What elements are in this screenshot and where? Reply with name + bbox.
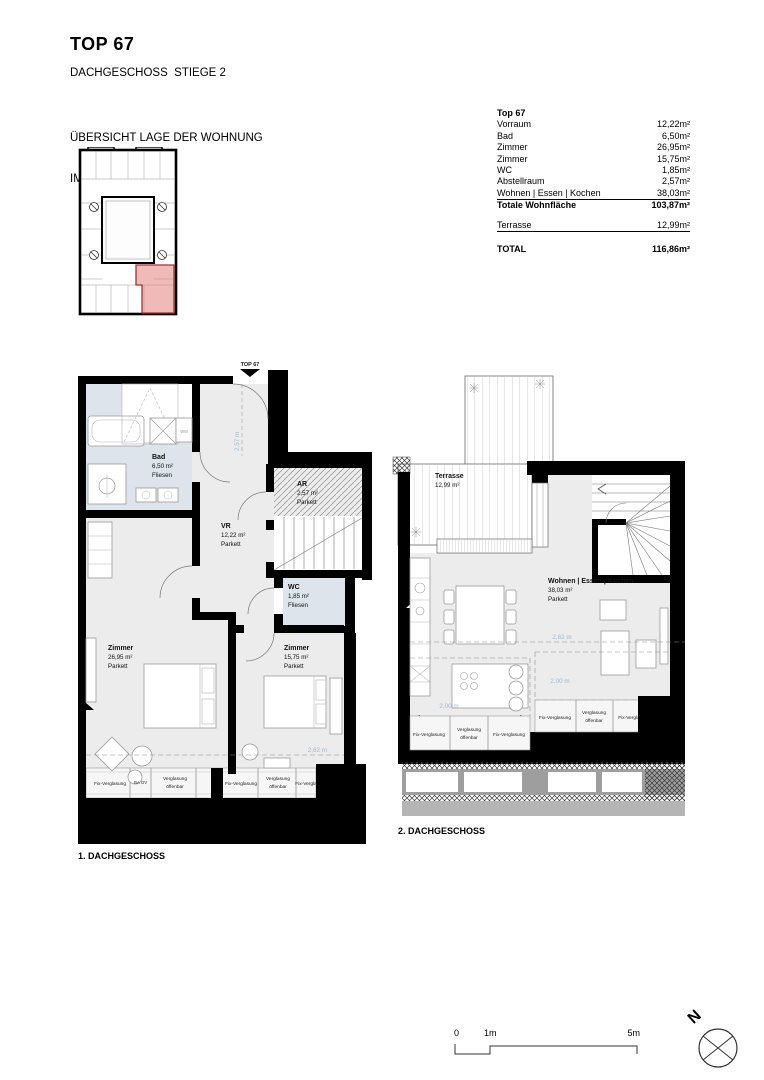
dim2-200-left: 2,00 m (439, 703, 458, 710)
svg-text:öffenbar: öffenbar (269, 784, 287, 790)
dim-257: 2,57 m (234, 432, 241, 451)
building-overview-plan (78, 147, 178, 318)
svg-text:Fix-Verglasung: Fix-Verglasung (413, 732, 445, 738)
dim2-262: 2,62 m (552, 634, 571, 641)
courtyard (102, 197, 154, 263)
ar-hatch (274, 468, 362, 516)
svg-text:Zimmer: Zimmer (284, 645, 310, 652)
svg-text:15,75 m²: 15,75 m² (284, 654, 308, 661)
dim2-200-right: 2,00 m (550, 678, 569, 685)
scale-tick-1m: 1m (484, 1028, 497, 1038)
table-total-row: TOTAL116,86m² (497, 244, 690, 255)
svg-text:Verglasung: Verglasung (457, 727, 481, 733)
window-band-left: Fix-Verglasung Verglasung öffenbar Fix-V… (410, 716, 530, 750)
table-row: Abstellraum2,57m² (497, 176, 690, 187)
svg-text:26,95 m²: 26,95 m² (108, 654, 132, 661)
entrance-label: TOP 67 (241, 362, 260, 368)
svg-text:Verglasung: Verglasung (582, 710, 606, 716)
page-title: TOP 67 (70, 34, 134, 55)
scale-bar: 0 1m 5m (450, 1022, 650, 1066)
svg-text:Verglasung: Verglasung (266, 776, 290, 782)
svg-text:AR: AR (297, 481, 307, 488)
north-compass: N (678, 998, 750, 1078)
table-row: WC1,85m² (497, 165, 690, 176)
highlighted-unit (136, 265, 174, 313)
table-terrace-row: Terrasse12,99m² (497, 220, 690, 232)
svg-text:Parkett: Parkett (108, 663, 128, 670)
table-row: Zimmer26,95m² (497, 142, 690, 153)
area-summary-table: Top 67 Vorraum12,22m² Bad6,50m² Zimmer26… (497, 108, 690, 255)
svg-text:6,50 m²: 6,50 m² (152, 463, 173, 470)
scale-tick-5m: 5m (627, 1028, 640, 1038)
band-end-wall (316, 764, 366, 802)
table-title: Top 67 (497, 108, 525, 119)
svg-text:Fliesen: Fliesen (152, 472, 173, 479)
plan1-caption: 1. DACHGESCHOSS (78, 851, 165, 861)
scale-bar-line (455, 1044, 637, 1054)
room-vr (192, 384, 274, 620)
dim-262: 2,62 m (308, 747, 327, 754)
table-row: Vorraum12,22m² (497, 119, 690, 130)
wm-label: WM (180, 429, 188, 434)
svg-text:Fix-Verglasung: Fix-Verglasung (94, 781, 126, 787)
window-band-right: Fix-Verglasung Verglasung öffenbar Fix-V… (535, 700, 645, 732)
svg-text:VR: VR (221, 523, 231, 530)
svg-text:Fix-Verglasung: Fix-Verglasung (539, 715, 571, 721)
svg-text:Parkett: Parkett (221, 541, 241, 548)
svg-text:12,22 m²: 12,22 m² (221, 532, 245, 539)
svg-text:Zimmer: Zimmer (108, 645, 134, 652)
plan2-caption: 2. DACHGESCHOSS (398, 826, 485, 836)
svg-text:Fix-Vergla: Fix-Vergla (295, 781, 317, 787)
north-label: N (685, 1007, 705, 1027)
entrance-arrow-icon (240, 369, 260, 377)
svg-text:12,99 m²: 12,99 m² (435, 482, 459, 489)
table-row: Zimmer15,75m² (497, 154, 690, 165)
terrace (398, 376, 553, 545)
svg-text:Bad: Bad (152, 454, 165, 461)
page-subtitle: DACHGESCHOSS STIEGE 2 (70, 67, 226, 79)
band-end-wall2 (638, 696, 685, 736)
svg-text:Terrasse: Terrasse (435, 473, 464, 480)
svg-text:Parkett: Parkett (297, 499, 317, 506)
bottom-roof-mass (78, 798, 366, 844)
svg-text:Fliesen: Fliesen (288, 602, 309, 609)
band-pier (211, 768, 223, 798)
svg-text:Fix-Verglasung: Fix-Verglasung (225, 781, 257, 787)
plan-1-dachgeschoss: TOP 67 (78, 356, 372, 856)
scale-tick-0: 0 (454, 1028, 459, 1038)
overview-heading-line1: ÜBERSICHT LAGE DER WOHNUNG (70, 132, 263, 146)
terrace-door-side (532, 483, 548, 547)
svg-text:Verglasung: Verglasung (163, 776, 187, 782)
svg-text:öffenbar: öffenbar (585, 718, 603, 724)
svg-text:Fix-Vergla: Fix-Vergla (618, 715, 640, 721)
svg-text:WC: WC (288, 584, 300, 591)
roof-hatch-corner (393, 457, 410, 474)
svg-text:2,57 m²: 2,57 m² (297, 490, 318, 497)
ba-gv-label: BA GV (134, 780, 147, 785)
floorplan-sheet: TOP 67 DACHGESCHOSS STIEGE 2 ÜBERSICHT L… (0, 0, 764, 1080)
svg-text:Wohnen | Essen | Kochen: Wohnen | Essen | Kochen (548, 578, 633, 585)
kitchen-counter (410, 558, 430, 696)
table-subtotal-row: Totale Wohnfläche103,87m² (497, 200, 690, 211)
svg-text:öffenbar: öffenbar (460, 735, 478, 741)
table-row: Wohnen | Essen | Kochen38,03m² (497, 188, 690, 200)
svg-text:Parkett: Parkett (548, 596, 568, 603)
table-row: Bad6,50m² (497, 131, 690, 142)
roof-strips (402, 762, 685, 816)
svg-text:1,85 m²: 1,85 m² (288, 593, 309, 600)
plan-2-dachgeschoss: 2,62 m 2,00 m 2,00 m Fix-Verglasung Verg… (392, 368, 692, 828)
svg-text:Fix-Verglasung: Fix-Verglasung (493, 732, 525, 738)
svg-text:Parkett: Parkett (284, 663, 304, 670)
svg-text:öffenbar: öffenbar (166, 784, 184, 790)
kitchen-island (452, 664, 528, 711)
svg-text:38,03 m²: 38,03 m² (548, 587, 572, 594)
terrace-door-bottom (437, 539, 532, 553)
